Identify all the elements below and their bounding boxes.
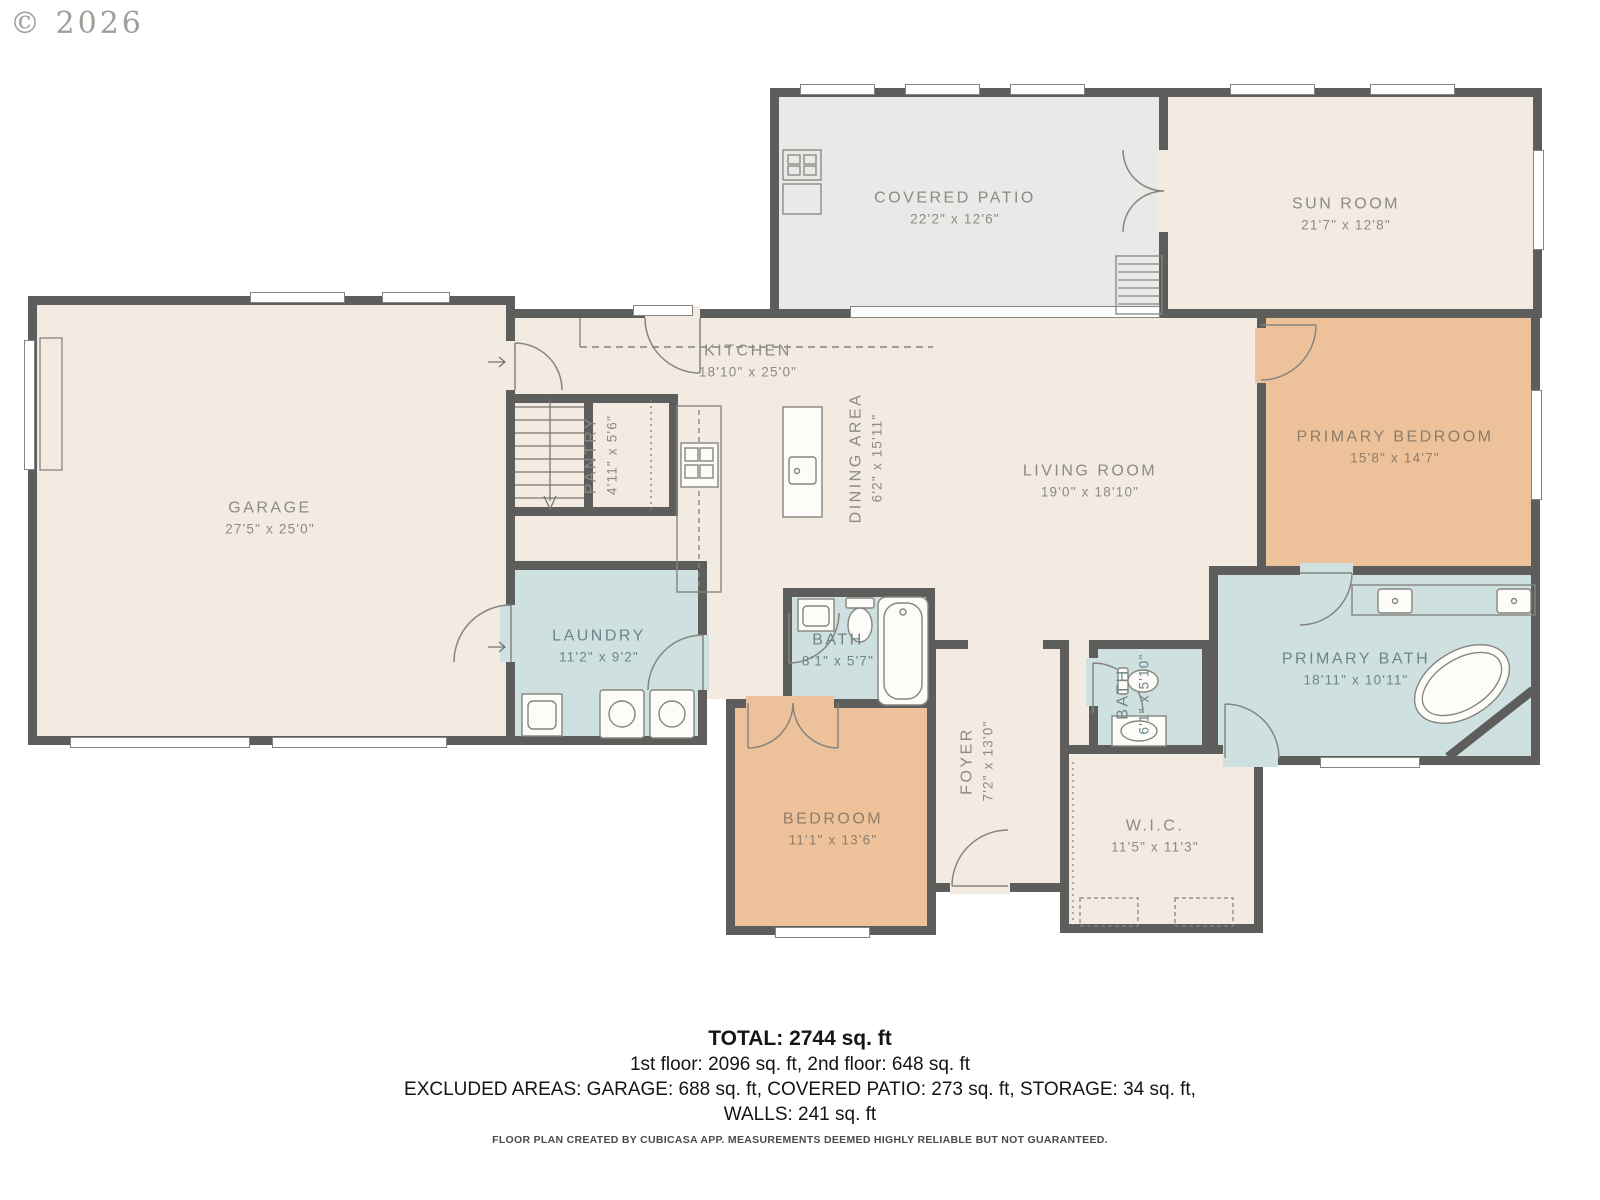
window	[1533, 150, 1544, 250]
dining-area-label: DINING AREA6'2" x 15'11"	[848, 393, 885, 524]
door-opening	[500, 605, 517, 662]
disclaimer: FLOOR PLAN CREATED BY CUBICASA APP. MEAS…	[0, 1134, 1600, 1146]
door-opening	[1157, 150, 1170, 232]
door-opening	[746, 696, 834, 710]
door-opening	[1255, 328, 1268, 383]
bath-2-label: BATH6'1" x 5'10"	[1115, 654, 1152, 735]
stairwell	[506, 394, 593, 516]
bath-label: BATH8'1" x 5'7"	[802, 632, 874, 669]
window	[1230, 84, 1315, 95]
total-area: TOTAL: 2744 sq. ft	[0, 1026, 1600, 1052]
foyer-label: FOYER7'2" x 13'0"	[959, 721, 996, 802]
window	[250, 292, 345, 303]
floor-areas: 1st floor: 2096 sq. ft, 2nd floor: 648 s…	[0, 1052, 1600, 1077]
window	[775, 927, 870, 938]
window	[272, 737, 447, 748]
pantry-label: PANTRY4'11" x 5'6"	[583, 415, 620, 495]
door-opening	[1300, 563, 1353, 577]
primary-bedroom-label: PRIMARY BEDROOM15'8" x 14'7"	[1297, 429, 1494, 466]
laundry-label: LAUNDRY11'2" x 9'2"	[552, 628, 646, 665]
covered-patio-label: COVERED PATIO22'2" x 12'6"	[874, 190, 1036, 227]
room-foyer	[927, 640, 1069, 892]
door-opening	[950, 880, 1010, 894]
living-room-label: LIVING ROOM19'0" x 18'10"	[1023, 463, 1157, 500]
window	[1531, 390, 1542, 500]
window	[905, 84, 980, 95]
sliding-door	[850, 306, 1160, 318]
window	[800, 84, 875, 95]
window	[633, 305, 693, 316]
sun-room-label: SUN ROOM21'7" x 12'8"	[1292, 196, 1400, 233]
floor-plan: COVERED PATIO22'2" x 12'6" SUN ROOM21'7"…	[0, 0, 1600, 1200]
area-summary: TOTAL: 2744 sq. ft 1st floor: 2096 sq. f…	[0, 1026, 1600, 1127]
door-opening	[696, 635, 709, 690]
bedroom-label: BEDROOM11'1" x 13'6"	[783, 811, 883, 848]
window	[1320, 757, 1420, 768]
window	[382, 292, 450, 303]
excluded-areas: EXCLUDED AREAS: GARAGE: 688 sq. ft, COVE…	[0, 1077, 1600, 1102]
walls-area: WALLS: 241 sq. ft	[0, 1102, 1600, 1127]
door-opening	[1223, 743, 1278, 767]
window	[1370, 84, 1455, 95]
window	[24, 340, 35, 470]
window	[1010, 84, 1085, 95]
window	[70, 737, 250, 748]
primary-bath-label: PRIMARY BATH18'11" x 10'11"	[1282, 651, 1430, 688]
hallway-floor	[707, 645, 783, 699]
copyright-watermark: © 2026	[10, 6, 144, 41]
kitchen-label: KITCHEN18'10" x 25'0"	[699, 343, 797, 380]
door-opening	[1086, 658, 1100, 706]
wic-label: W.I.C.11'5" x 11'3"	[1111, 818, 1199, 855]
door-opening	[504, 341, 517, 390]
garage-label: GARAGE27'5" x 25'0"	[225, 500, 315, 537]
door-opening	[968, 637, 1043, 652]
